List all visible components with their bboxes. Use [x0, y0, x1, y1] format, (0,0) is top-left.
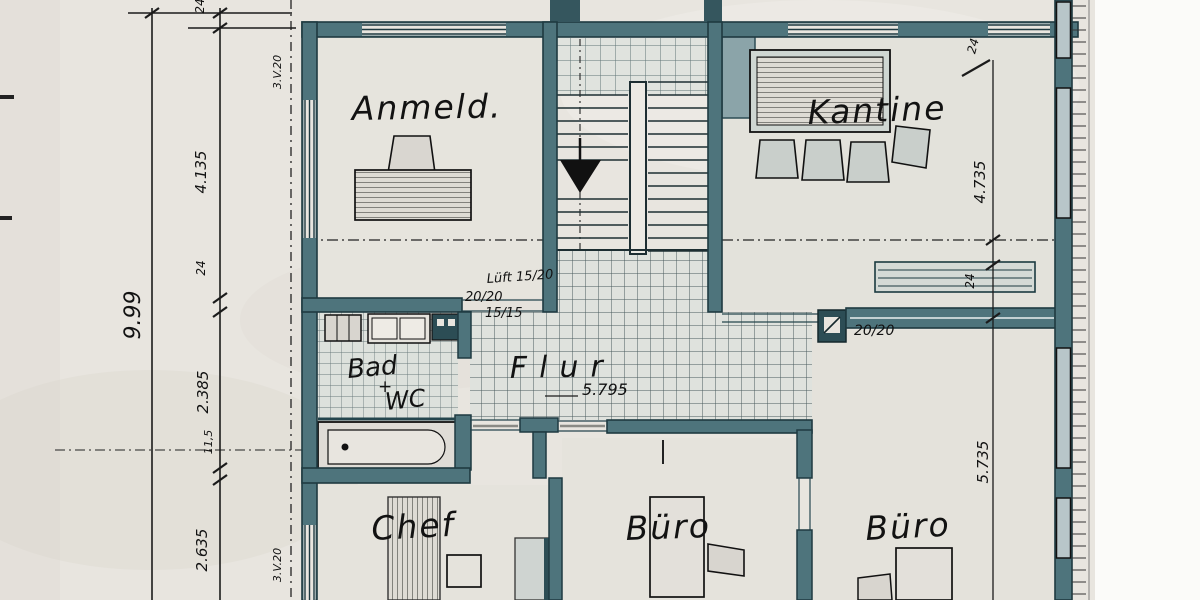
- wc-cistern: [325, 315, 361, 341]
- anmeld-desk: [355, 170, 471, 220]
- bad-washbasin: [368, 314, 430, 343]
- wall-pier-cap: [520, 418, 558, 432]
- floor-plan-scan: Anmeld. Kantine Flur 5.795 Bad + WC Chef…: [0, 0, 1200, 600]
- floor-plan-canvas: Anmeld. Kantine Flur 5.795 Bad + WC Chef…: [0, 0, 1200, 600]
- kantine-chair: [847, 142, 889, 182]
- dim-wall-mid-left: 24: [194, 260, 208, 275]
- note-duct2: 15/15: [485, 306, 522, 321]
- wall-anmeld-south: [302, 298, 462, 312]
- axis-label-top: 3.V.20: [271, 55, 284, 89]
- kantine-chair: [892, 126, 930, 168]
- stairwell-wall-right: [708, 22, 722, 312]
- window-left-anmeld: [304, 100, 316, 238]
- wall-chef-east: [549, 478, 562, 600]
- wall-flur-south: [607, 420, 812, 433]
- dim-seg2-left: 2.385: [194, 371, 212, 414]
- buero-rechts-chair: [858, 574, 892, 600]
- room-label-kantine: Kantine: [807, 88, 947, 132]
- dim-wall-top-left: 24: [193, 0, 207, 14]
- buero-rechts-desk: [896, 548, 952, 600]
- dim-seg2-right: 5.735: [974, 441, 992, 484]
- dim-wall-mid-right: 24: [963, 273, 977, 288]
- flur-dimension: 5.795: [582, 380, 628, 399]
- wall-bueros-upper: [797, 430, 812, 478]
- bad-duct-box: [432, 314, 460, 340]
- chef-cabinet: [515, 538, 553, 600]
- stair-top-window-block: [550, 0, 580, 22]
- dim-seg3-left: 2.635: [193, 529, 211, 572]
- note-duct1: 20/20: [465, 290, 502, 305]
- note-column: 20/20: [854, 323, 894, 339]
- window-top-kantine: [788, 24, 898, 36]
- room-label-buero-rechts: Büro: [864, 505, 951, 548]
- buero-mitte-chair: [708, 544, 744, 576]
- wall-pier-stem: [533, 432, 546, 478]
- wall-bad-east-upper: [458, 312, 471, 358]
- wall-bueros-lower: [797, 530, 812, 600]
- window-top-right: [988, 24, 1050, 36]
- margin-mark: [0, 216, 12, 220]
- kantine-chair: [802, 140, 844, 180]
- wall-bad-east-lower: [455, 415, 471, 470]
- axis-label-bottom: 3.V.20: [271, 548, 284, 582]
- stair-stringer: [630, 82, 646, 254]
- anmeld-chair: [388, 136, 435, 173]
- kantine-radiator: [875, 262, 1035, 292]
- dim-total-left: 9.99: [121, 291, 146, 340]
- window-left-chef: [304, 525, 316, 600]
- column-20x20: [818, 310, 846, 342]
- stair-top-wall-stub: [704, 0, 722, 22]
- room-label-chef: Chef: [370, 505, 458, 548]
- room-label-buero-mitte: Büro: [625, 506, 712, 548]
- wall-bad-south: [302, 468, 470, 483]
- room-label-wc: WC: [384, 384, 427, 416]
- kantine-chair: [756, 140, 798, 178]
- window-top-anmeld: [362, 24, 506, 36]
- dim-wall-thin-left: 11,5: [202, 430, 215, 455]
- dim-seg1-left: 4.135: [192, 151, 210, 194]
- bathtub-drain: [342, 444, 349, 451]
- stair-lower-landing-tiles: [557, 250, 708, 312]
- dim-seg1-right: 4.735: [971, 161, 989, 204]
- bathtub: [318, 422, 466, 470]
- scan-white-margin: [1095, 0, 1200, 600]
- room-label-anmeld: Anmeld.: [349, 86, 502, 128]
- margin-mark: [0, 95, 14, 99]
